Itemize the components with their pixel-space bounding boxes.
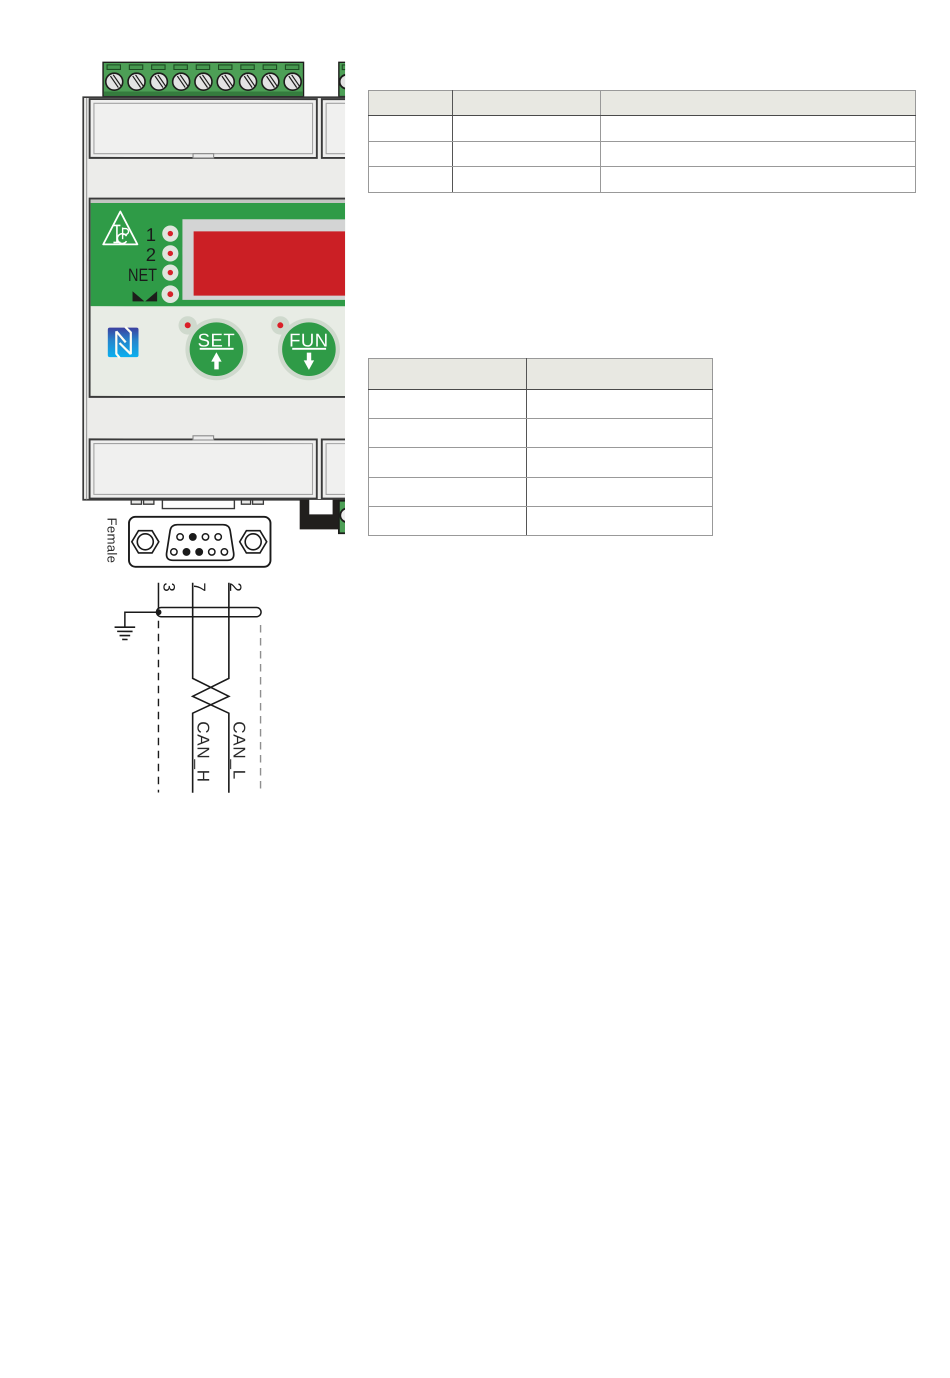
svg-text:NET: NET (128, 265, 157, 285)
svg-text:CAN_L: CAN_L (229, 721, 248, 780)
svg-text:3: 3 (159, 582, 177, 591)
svg-text:CAN_H: CAN_H (194, 721, 213, 783)
svg-text:Female: Female (104, 517, 119, 563)
svg-text:FUN: FUN (289, 330, 329, 351)
svg-text:1: 1 (146, 224, 156, 245)
svg-text:2: 2 (146, 244, 156, 265)
svg-text:SET: SET (198, 329, 235, 350)
